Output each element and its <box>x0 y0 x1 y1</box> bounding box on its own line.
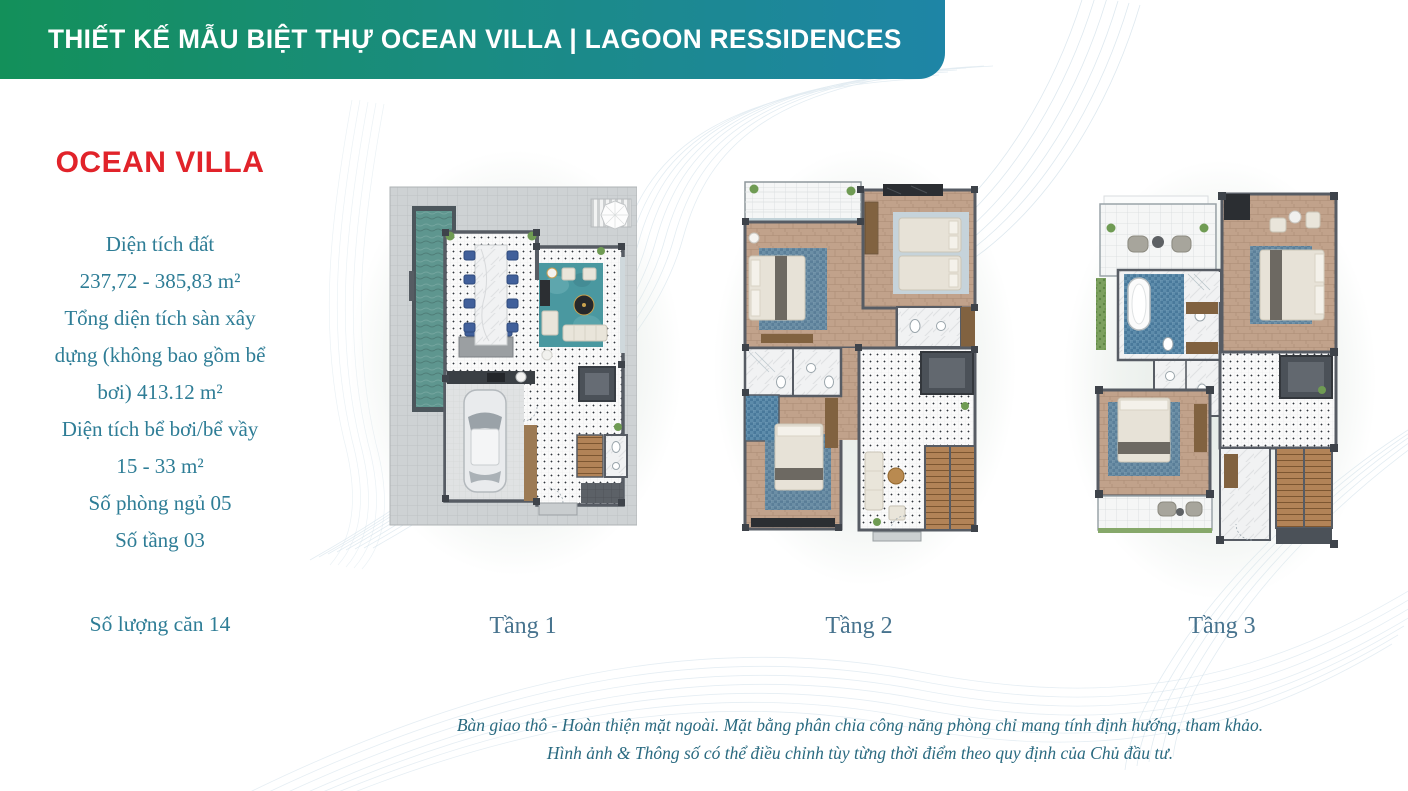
bathroom <box>605 435 627 477</box>
spec-line: Tổng diện tích sàn xây <box>5 300 315 337</box>
balcony <box>745 182 861 222</box>
bedroom-bottom-left <box>1098 390 1210 496</box>
elevator <box>579 367 615 401</box>
umbrella-deck <box>591 199 631 229</box>
unit-quantity: Số lượng căn 14 <box>5 612 315 637</box>
spec-line: Số phòng ngủ 05 <box>5 485 315 522</box>
floor-plan-3 <box>1094 190 1344 560</box>
villa-name: OCEAN VILLA <box>10 146 310 180</box>
terrace-bottom <box>1098 496 1212 533</box>
entry-hall <box>1220 448 1270 540</box>
bedroom-1-top-left <box>749 233 827 343</box>
stairs <box>1276 448 1332 544</box>
terrace-top <box>1100 196 1216 276</box>
disclaimer-line-1: Bàn giao thô - Hoàn thiện mặt ngoài. Mặt… <box>290 711 1408 739</box>
page-title: THIẾT KẾ MẪU BIỆT THỰ OCEAN VILLA | LAGO… <box>48 24 902 55</box>
hedge <box>1096 278 1106 350</box>
slide: THIẾT KẾ MẪU BIỆT THỰ OCEAN VILLA | LAGO… <box>0 0 1408 791</box>
floor-1-label: Tầng 1 <box>423 613 623 640</box>
garage <box>446 383 537 501</box>
spec-line: Diện tích bể bơi/bể vầy <box>5 411 315 448</box>
spec-list: Diện tích đất 237,72 - 385,83 m² Tổng di… <box>5 226 315 559</box>
plants <box>1318 386 1326 394</box>
disclaimer: Bàn giao thô - Hoàn thiện mặt ngoài. Mặt… <box>290 711 1408 767</box>
floor-3-label: Tầng 3 <box>1122 613 1322 640</box>
car <box>464 390 506 492</box>
stairs <box>925 446 975 530</box>
elevator <box>921 352 973 394</box>
header-banner: THIẾT KẾ MẪU BIỆT THỰ OCEAN VILLA | LAGO… <box>0 0 945 79</box>
spec-line: 237,72 - 385,83 m² <box>5 263 315 300</box>
bathroom-right <box>897 307 975 347</box>
spec-line: Diện tích đất <box>5 226 315 263</box>
spec-line: dựng (không bao gồm bể <box>5 337 315 374</box>
spec-line: bơi) 413.12 m² <box>5 374 315 411</box>
stairs <box>577 435 603 477</box>
floor-plan-2 <box>741 176 987 544</box>
floor-2-label: Tầng 2 <box>759 613 959 640</box>
spec-line: 15 - 33 m² <box>5 448 315 485</box>
bedroom-top-right <box>1222 194 1336 352</box>
bathrooms-middle <box>745 348 841 396</box>
floor-plan-1 <box>387 185 637 527</box>
disclaimer-line-2: Hình ảnh & Thông số có thể điều chỉnh tù… <box>290 739 1408 767</box>
spec-line: Số tầng 03 <box>5 522 315 559</box>
